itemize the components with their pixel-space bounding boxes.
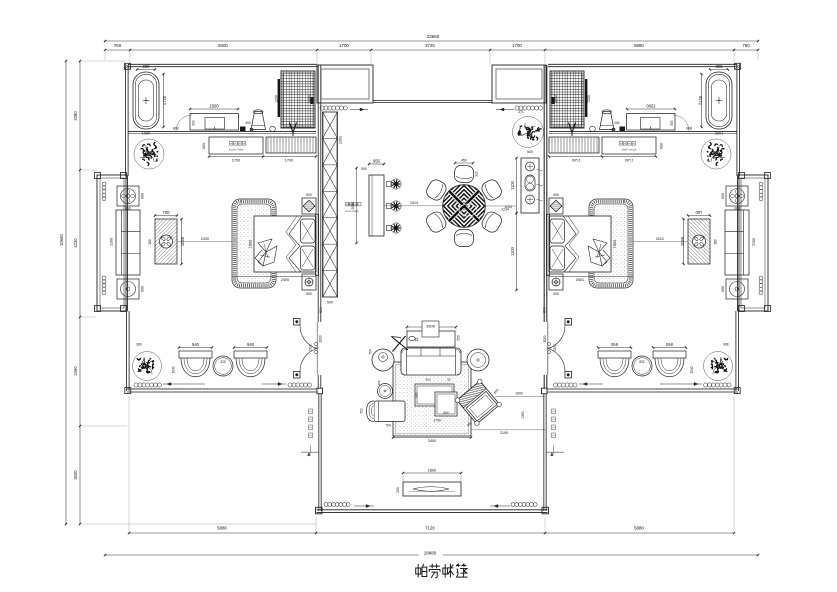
svg-text:3720: 3720: [425, 43, 435, 48]
svg-text:500: 500: [306, 193, 312, 197]
svg-text:1500: 1500: [646, 103, 656, 108]
svg-text:950: 950: [373, 158, 381, 163]
svg-text:1700: 1700: [512, 43, 522, 48]
svg-text:23660: 23660: [427, 34, 440, 39]
svg-text:1100: 1100: [510, 180, 515, 190]
svg-text:1200: 1200: [275, 95, 279, 103]
svg-text:500: 500: [319, 307, 323, 313]
svg-text:2100: 2100: [752, 238, 756, 246]
svg-text:2000: 2000: [308, 95, 312, 103]
svg-text:500: 500: [327, 301, 333, 305]
svg-text:1500: 1500: [426, 324, 436, 329]
svg-text:700: 700: [163, 210, 171, 215]
svg-text:940: 940: [247, 342, 255, 347]
svg-text:500: 500: [553, 292, 559, 296]
svg-text:600: 600: [721, 193, 725, 199]
svg-text:3000: 3000: [73, 470, 78, 480]
svg-text:4230: 4230: [73, 238, 78, 248]
svg-text:2400: 2400: [576, 278, 584, 282]
svg-text:500: 500: [306, 292, 312, 296]
svg-text:325: 325: [220, 360, 226, 364]
svg-text:550: 550: [457, 335, 461, 341]
svg-text:1500: 1500: [309, 344, 313, 352]
svg-text:Accent Table: Accent Table: [621, 148, 636, 152]
svg-text:1200: 1200: [587, 95, 591, 103]
svg-text:380: 380: [377, 380, 381, 385]
svg-text:900: 900: [425, 378, 430, 382]
svg-text:2400: 2400: [281, 278, 289, 282]
svg-text:2460: 2460: [73, 366, 78, 376]
svg-text:360: 360: [136, 343, 142, 347]
svg-text:2000: 2000: [553, 95, 557, 103]
svg-text:330: 330: [192, 120, 196, 126]
svg-text:600: 600: [141, 286, 145, 292]
svg-text:6000: 6000: [218, 43, 228, 48]
svg-text:1800: 1800: [613, 240, 617, 248]
svg-text:800: 800: [143, 64, 151, 69]
svg-text:1800: 1800: [428, 468, 436, 472]
svg-text:1700: 1700: [625, 159, 633, 163]
svg-text:1090: 1090: [515, 392, 523, 396]
svg-text:371: 371: [518, 110, 524, 114]
svg-text:800: 800: [715, 64, 723, 69]
svg-text:1700: 1700: [232, 159, 240, 163]
svg-text:360: 360: [723, 343, 729, 347]
svg-text:1500: 1500: [553, 344, 557, 352]
svg-text:1390: 1390: [521, 411, 525, 419]
svg-text:7120: 7120: [425, 526, 435, 531]
svg-text:10660: 10660: [59, 234, 64, 246]
svg-text:900: 900: [361, 167, 367, 171]
svg-text:850: 850: [734, 206, 740, 210]
svg-text:500: 500: [443, 411, 449, 415]
svg-text:1800: 1800: [249, 240, 253, 248]
svg-text:180: 180: [148, 239, 152, 245]
svg-text:600: 600: [141, 193, 145, 199]
svg-text:1700: 1700: [339, 43, 349, 48]
svg-text:500: 500: [553, 193, 559, 197]
svg-text:1056: 1056: [180, 236, 185, 246]
svg-text:1030: 1030: [172, 366, 176, 373]
svg-text:760: 760: [742, 43, 750, 48]
svg-text:1234: 1234: [504, 205, 512, 209]
svg-text:500: 500: [527, 150, 533, 154]
svg-text:2190: 2190: [500, 431, 508, 435]
svg-text:760: 760: [114, 43, 122, 48]
svg-text:940: 940: [192, 342, 200, 347]
svg-text:912: 912: [475, 171, 479, 177]
svg-text:180: 180: [713, 239, 717, 245]
svg-text:940: 940: [610, 342, 618, 347]
svg-text:2400: 2400: [428, 439, 436, 443]
svg-text:450: 450: [614, 121, 620, 125]
svg-text:5880: 5880: [634, 526, 644, 531]
svg-text:1056: 1056: [680, 236, 685, 246]
svg-text:5880: 5880: [217, 526, 227, 531]
svg-text:600: 600: [721, 286, 725, 292]
svg-text:2430: 2430: [201, 237, 209, 241]
svg-text:330: 330: [670, 120, 674, 126]
svg-text:250: 250: [396, 487, 400, 493]
svg-text:1600: 1600: [319, 335, 323, 342]
svg-text:Accent Table: Accent Table: [229, 148, 244, 152]
svg-text:650: 650: [415, 392, 419, 397]
svg-text:5880: 5880: [634, 43, 644, 48]
svg-text:325: 325: [639, 360, 645, 364]
svg-text:1700: 1700: [433, 419, 441, 423]
svg-text:1100: 1100: [510, 246, 515, 256]
svg-text:2100: 2100: [110, 238, 114, 246]
svg-text:50: 50: [447, 378, 451, 382]
svg-text:18880: 18880: [424, 551, 437, 556]
svg-text:1030: 1030: [690, 366, 694, 373]
svg-text:450: 450: [245, 121, 251, 125]
svg-text:850: 850: [125, 206, 131, 210]
svg-text:1725: 1725: [698, 95, 703, 105]
svg-text:940: 940: [665, 342, 673, 347]
svg-text:1500: 1500: [209, 103, 219, 108]
svg-text:2000: 2000: [351, 202, 355, 209]
svg-text:2201: 2201: [339, 136, 343, 144]
svg-text:2430: 2430: [656, 237, 664, 241]
svg-text:754: 754: [385, 424, 391, 428]
svg-text:600: 600: [659, 143, 663, 149]
svg-text:1700: 1700: [285, 159, 293, 163]
svg-text:450: 450: [461, 158, 467, 162]
svg-text:1600: 1600: [543, 335, 547, 342]
svg-text:600: 600: [202, 143, 206, 149]
svg-text:1700: 1700: [572, 159, 580, 163]
svg-text:1725: 1725: [162, 95, 167, 105]
svg-text:754: 754: [369, 349, 373, 355]
svg-text:720: 720: [360, 408, 364, 414]
svg-text:2280: 2280: [73, 111, 78, 121]
svg-text:700: 700: [695, 210, 703, 215]
svg-text:1814: 1814: [410, 201, 418, 205]
